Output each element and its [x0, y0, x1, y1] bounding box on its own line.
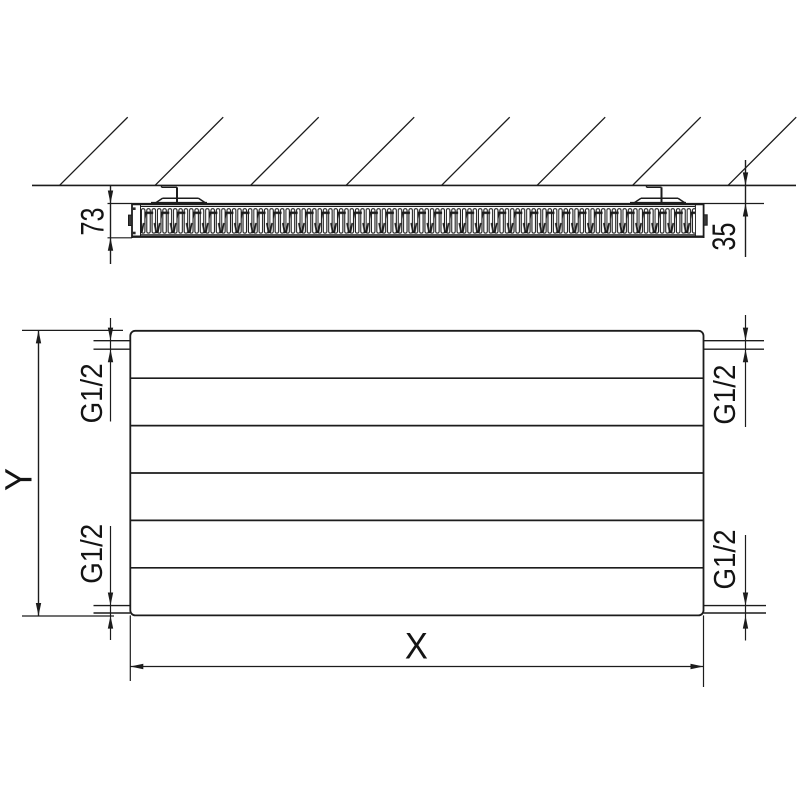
svg-text:73: 73: [74, 208, 110, 236]
svg-text:35: 35: [706, 223, 742, 251]
svg-text:G1/2: G1/2: [74, 524, 109, 584]
svg-text:Y: Y: [0, 468, 40, 491]
svg-text:G1/2: G1/2: [707, 365, 742, 425]
svg-text:X: X: [405, 625, 428, 666]
svg-text:G1/2: G1/2: [74, 363, 109, 423]
svg-text:G1/2: G1/2: [707, 530, 742, 590]
